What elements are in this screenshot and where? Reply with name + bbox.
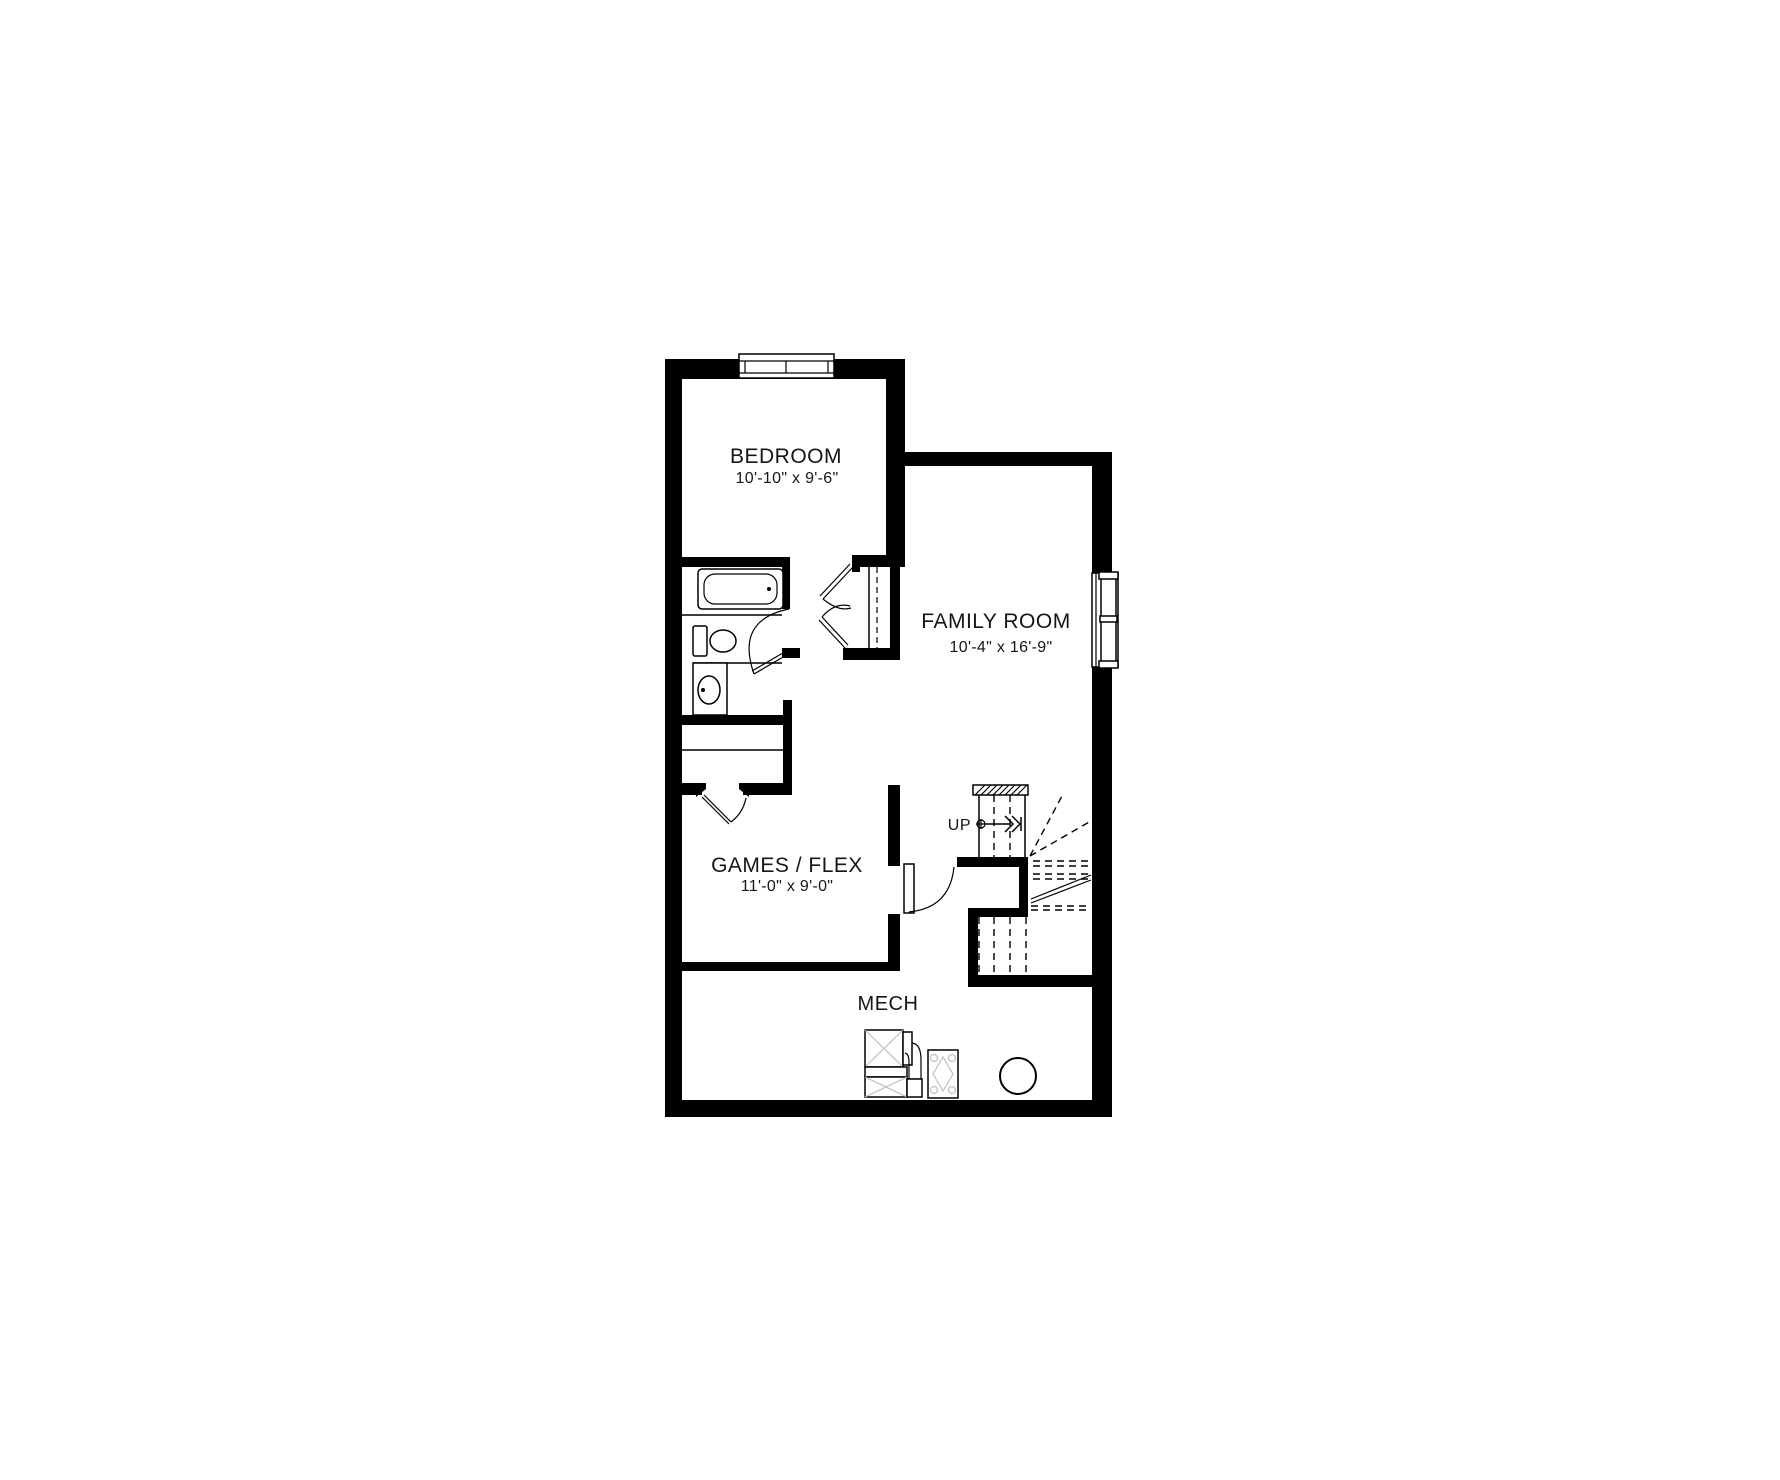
window-cap-top xyxy=(1099,572,1118,579)
wall-closet-bottom xyxy=(843,648,900,660)
up-arrow xyxy=(976,816,1021,832)
water-heater-circle xyxy=(1000,1058,1036,1094)
wall-stair-bottom xyxy=(968,975,1093,987)
mech-label: MECH xyxy=(858,993,919,1015)
wall-exterior-left xyxy=(665,359,682,1117)
mech-door xyxy=(904,864,954,913)
stair-risers-lower xyxy=(979,917,1026,975)
family-room-window xyxy=(1092,572,1118,668)
wall-games-east-lower xyxy=(888,914,900,970)
sink-faucet xyxy=(701,688,705,692)
games-flex-door xyxy=(702,795,746,824)
bathtub xyxy=(682,569,783,615)
door-swing-arc xyxy=(749,609,789,674)
wall-games-head-right xyxy=(743,783,792,795)
toilet xyxy=(693,626,736,656)
door-leaf xyxy=(819,617,848,648)
wall-exterior-right-upper xyxy=(1092,452,1112,573)
stair-winders-dashed xyxy=(1030,796,1091,910)
window-cap-middle xyxy=(1100,616,1117,622)
sink-vanity xyxy=(693,663,782,715)
door-swing-arc xyxy=(822,605,850,617)
floor-plan-drawing: BEDROOM 10'-10" x 9'-6" FAMILY ROOM 10'-… xyxy=(0,0,1780,1480)
bedroom-closet xyxy=(869,567,877,648)
wall-bathroom-top xyxy=(682,557,790,567)
hall-door xyxy=(819,605,850,648)
toilet-bowl xyxy=(710,630,736,652)
wall-games-east-upper xyxy=(888,785,900,866)
wall-exterior-right-lower xyxy=(1092,667,1112,1117)
toilet-tank xyxy=(693,626,707,656)
games-flex-label: GAMES / FLEX xyxy=(711,854,863,877)
wall-stair-landing-top xyxy=(957,857,1028,867)
bathroom-door xyxy=(749,609,790,674)
wall-games-bottom xyxy=(665,962,900,971)
furnace xyxy=(865,1030,922,1097)
furnace-side-panel xyxy=(903,1032,912,1065)
wall-linen-east xyxy=(783,700,792,795)
door-leaf xyxy=(820,564,853,599)
wall-closet-jamb xyxy=(852,555,860,572)
bathtub-drain xyxy=(767,587,771,591)
bedroom-label: BEDROOM xyxy=(730,445,842,468)
door-swing-arc xyxy=(731,798,746,822)
up-arrow-origin-cross xyxy=(976,819,986,829)
door-swing-arc xyxy=(909,867,954,912)
door-leaf xyxy=(702,795,731,824)
door-leaf xyxy=(904,864,914,913)
floor-plan-page: BEDROOM 10'-10" x 9'-6" FAMILY ROOM 10'-… xyxy=(0,0,1780,1480)
bedroom-window xyxy=(739,354,834,378)
door-swing-arc xyxy=(823,599,851,609)
hvac-unit xyxy=(928,1050,958,1098)
wall-closet-right xyxy=(890,555,900,660)
window-cap-bottom xyxy=(1099,661,1118,668)
wall-bathroom-south xyxy=(665,715,790,725)
bedroom-door xyxy=(820,564,853,609)
stairs-up-label: UP xyxy=(948,817,971,834)
bedroom-dims: 10'-10" x 9'-6" xyxy=(736,470,839,487)
stair-risers-upper xyxy=(994,795,1010,857)
games-flex-dims: 11'-0" x 9'-0" xyxy=(741,878,834,895)
furnace-middle-band xyxy=(865,1067,907,1077)
wall-exterior-bottom xyxy=(665,1100,1112,1117)
staircase xyxy=(973,785,1091,975)
furnace-bottom-tab xyxy=(907,1079,922,1097)
family-room-label: FAMILY ROOM xyxy=(921,610,1070,633)
wall-familyroom-top xyxy=(886,452,1112,466)
family-room-dims: 10'-4" x 16'-9" xyxy=(950,639,1053,656)
